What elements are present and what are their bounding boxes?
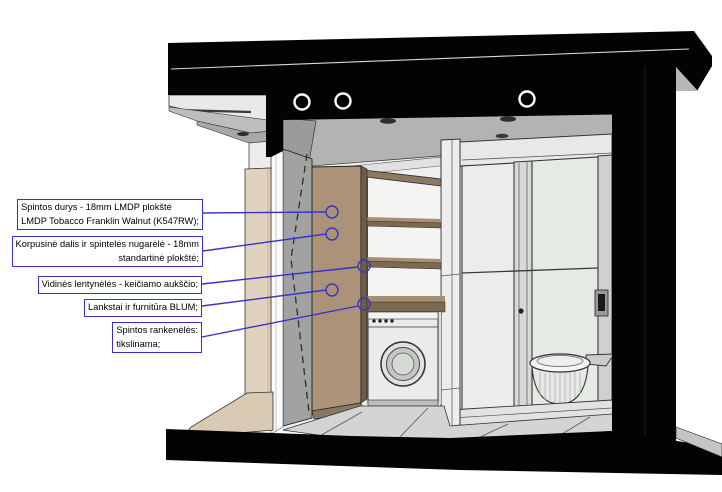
label-line: standartinė plokštė; [16, 252, 199, 266]
label-handles: Spintos rankenėlės: tikslinama; [112, 322, 202, 353]
door-jamb [271, 150, 283, 434]
label-line: LMDP Tobacco Franklin Walnut (K547RW); [21, 215, 199, 229]
drawing-canvas: Spintos durys - 18mm LMDP plokštė LMDP T… [0, 0, 722, 492]
wardrobe-back-panel [366, 177, 441, 300]
left-corner-cut [266, 92, 283, 157]
label-hinges-hardware: Lankstai ir furnitūra BLUM; [84, 299, 202, 317]
label-line: tikslinama; [116, 338, 198, 352]
recessed-handle-icon [595, 290, 608, 316]
shower-frame-right [598, 155, 612, 404]
label-door-material: Spintos durys - 18mm LMDP plokštė LMDP T… [17, 199, 203, 230]
shower-glass-left [462, 163, 514, 415]
label-line: Spintos durys - 18mm LMDP plokštė [21, 201, 199, 215]
wardrobe-shelf [366, 257, 441, 269]
wardrobe-counter [363, 296, 445, 312]
right-wall-cut [612, 64, 676, 449]
ceiling-spot-icon [380, 118, 396, 124]
shower-enclosure [450, 134, 614, 426]
wardrobe-open-door [312, 166, 367, 419]
washing-machine [366, 312, 441, 406]
label-carcass-back-panel: Korpusinė dalis ir spintelės nugarėlė - … [12, 236, 203, 267]
door-knob-icon [518, 308, 523, 313]
label-line: Spintos rankenėlės: [116, 324, 198, 338]
label-line: Korpusinė dalis ir spintelės nugarėlė - … [16, 238, 199, 252]
label-line: Vidinės lentynėlės - keičiamo aukščio; [42, 278, 198, 292]
label-inner-shelves: Vidinės lentynėlės - keičiamo aukščio; [38, 276, 202, 294]
door-swing-panel [283, 149, 312, 426]
wardrobe [283, 149, 445, 426]
label-line: Lankstai ir furnitūra BLUM; [88, 301, 198, 315]
soffit-spot-icon [237, 132, 249, 136]
ceiling-spot-icon [500, 116, 516, 122]
beige-wall-column [245, 168, 271, 405]
partition-wall [441, 139, 460, 428]
ceiling-spot-icon [496, 134, 509, 138]
shower-door-mullion [514, 161, 532, 410]
